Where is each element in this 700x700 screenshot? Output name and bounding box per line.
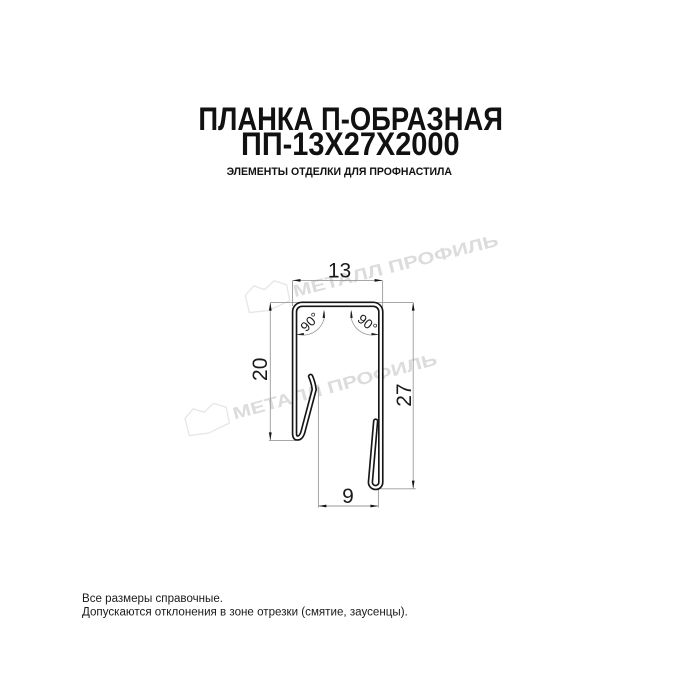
svg-text:13: 13: [328, 260, 351, 283]
svg-text:20: 20: [249, 358, 272, 381]
svg-text:90°: 90°: [298, 310, 323, 335]
svg-text:МЕТАЛЛ ПРОФИЛЬ: МЕТАЛЛ ПРОФИЛЬ: [291, 231, 500, 301]
svg-text:27: 27: [393, 383, 416, 406]
svg-text:Допускаются отклонения в зоне: Допускаются отклонения в зоне отрезки (с…: [82, 607, 408, 619]
svg-text:ЭЛЕМЕНТЫ ОТДЕЛКИ ДЛЯ ПРОФНАСТИ: ЭЛЕМЕНТЫ ОТДЕЛКИ ДЛЯ ПРОФНАСТИЛА: [227, 166, 452, 178]
svg-text:ПП-13Х27Х2000: ПП-13Х27Х2000: [241, 126, 460, 162]
svg-text:90°: 90°: [355, 311, 380, 335]
svg-text:9: 9: [342, 485, 354, 508]
svg-text:Все размеры справочные.: Все размеры справочные.: [82, 593, 223, 605]
